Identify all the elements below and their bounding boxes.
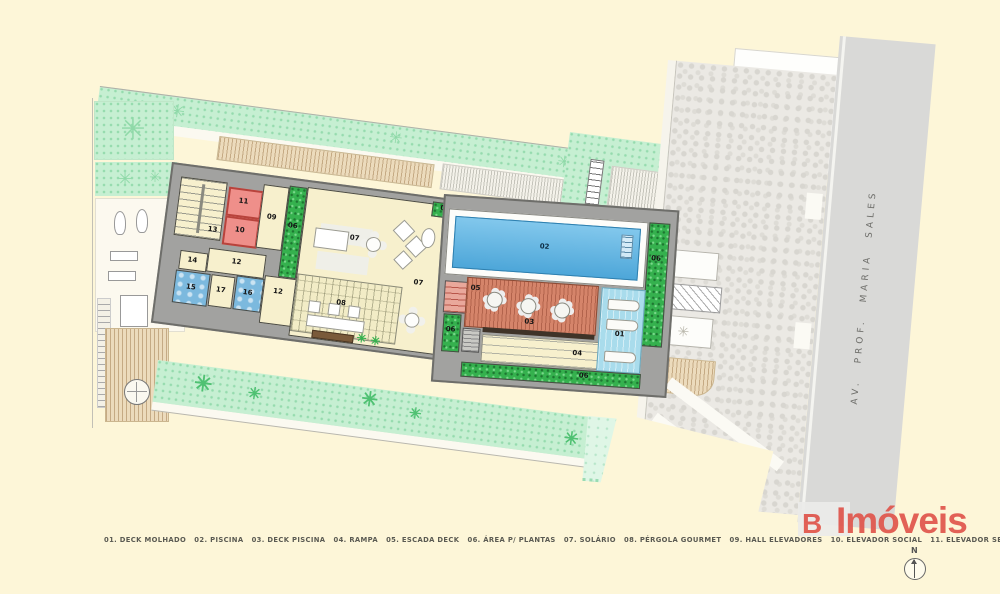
plant-sketch-icon: ✳ [677,324,690,339]
pool-ladder-icon [620,234,634,259]
stairwell-13 [174,176,228,241]
grill-icon [461,328,481,353]
deck-table-icon [520,298,537,315]
round-table-icon [365,236,382,253]
ladder-icon [585,159,605,206]
side-table-icon [420,227,436,249]
label-hall-wc: 17 [215,286,226,294]
palm-tree-icon: ✳ [193,372,214,396]
gym-bench-icon [110,251,138,261]
label-circulacao: 12 [231,258,242,266]
deck-table-icon [554,302,571,319]
tree-sketch-icon: ✳ [149,170,161,184]
label-elevador-social: 10 [234,226,245,234]
palm-tree-icon: ✳ [360,389,379,411]
label-deck-molhado: 01 [615,331,625,339]
label-elevador-servico: 11 [238,198,249,206]
curb-tab [805,193,823,220]
palm-tree-icon: ✳ [247,386,262,404]
label-escada: 13 [207,226,218,234]
compass-circle-icon [904,558,926,580]
label-rampa: 04 [572,350,582,358]
round-table-icon [403,312,420,329]
label-area-plantas-bottom: 06 [579,372,589,380]
planter-icon: ✳ [356,332,368,345]
label-solario-a: 07 [349,234,360,242]
pool-lounger-icon [604,351,637,364]
palm-tree-icon: ✳ [408,406,422,423]
compass-arrowhead-icon [911,559,917,564]
stair-rail [196,184,205,233]
table-cross [127,391,147,392]
street-name: AV. PROF. MARIA SALES [845,127,885,467]
table-cross [136,382,137,402]
gym-bench-icon [108,271,136,281]
label-solario-b: 07 [413,279,424,287]
label-area-plantas-box: 06 [445,326,455,334]
label-pergola: 08 [336,299,347,307]
exercise-bike-icon [136,209,148,233]
gym-equipment-icon [120,295,148,327]
left-tree-panel-2: ✳ ✳ [95,162,177,196]
tree-sketch-icon: ✳ [120,115,145,145]
label-deck-piscina: 03 [524,318,534,326]
curb-tab [793,322,811,349]
logo-mark: B [802,508,822,540]
tree-sketch-icon: ✳ [117,170,132,188]
left-tree-panel: ✳ [94,101,174,160]
round-table-icon [124,379,150,405]
tree-sketch-icon: ✳ [388,130,403,148]
label-escada-deck: 05 [470,285,480,293]
label-circulacao-b: 12 [273,288,284,296]
label-piscina: 02 [539,243,549,251]
label-wc-16: 16 [242,289,253,297]
dining-table-icon [313,227,349,251]
building-pool-wing: 02 06 05 03 06 04 01 [431,194,680,398]
logo: B Imóveis [794,494,994,550]
pergola-table-icon [308,300,321,313]
pergola-table-icon [347,305,360,318]
exercise-bike-icon [114,211,126,235]
lounge-chair-icon [393,250,413,270]
label-area-plantas-right: 06 [651,255,661,263]
palm-tree-icon: ✳ [563,429,580,449]
label-deposito: 14 [187,256,198,264]
planter-icon: ✳ [370,334,382,347]
north-compass: N [900,546,930,590]
deck-table-icon [486,291,503,308]
label-hall-elevadores: 09 [266,213,277,221]
site-plan-canvas: ✳ ✳ ✳ ✳ ✳ ✳ ✳ [0,0,1000,594]
pool-lounger-icon [607,299,640,312]
label-wc-15: 15 [185,283,196,291]
label-area-plantas: 06 [287,222,298,230]
logo-name: Imóveis [836,500,967,542]
